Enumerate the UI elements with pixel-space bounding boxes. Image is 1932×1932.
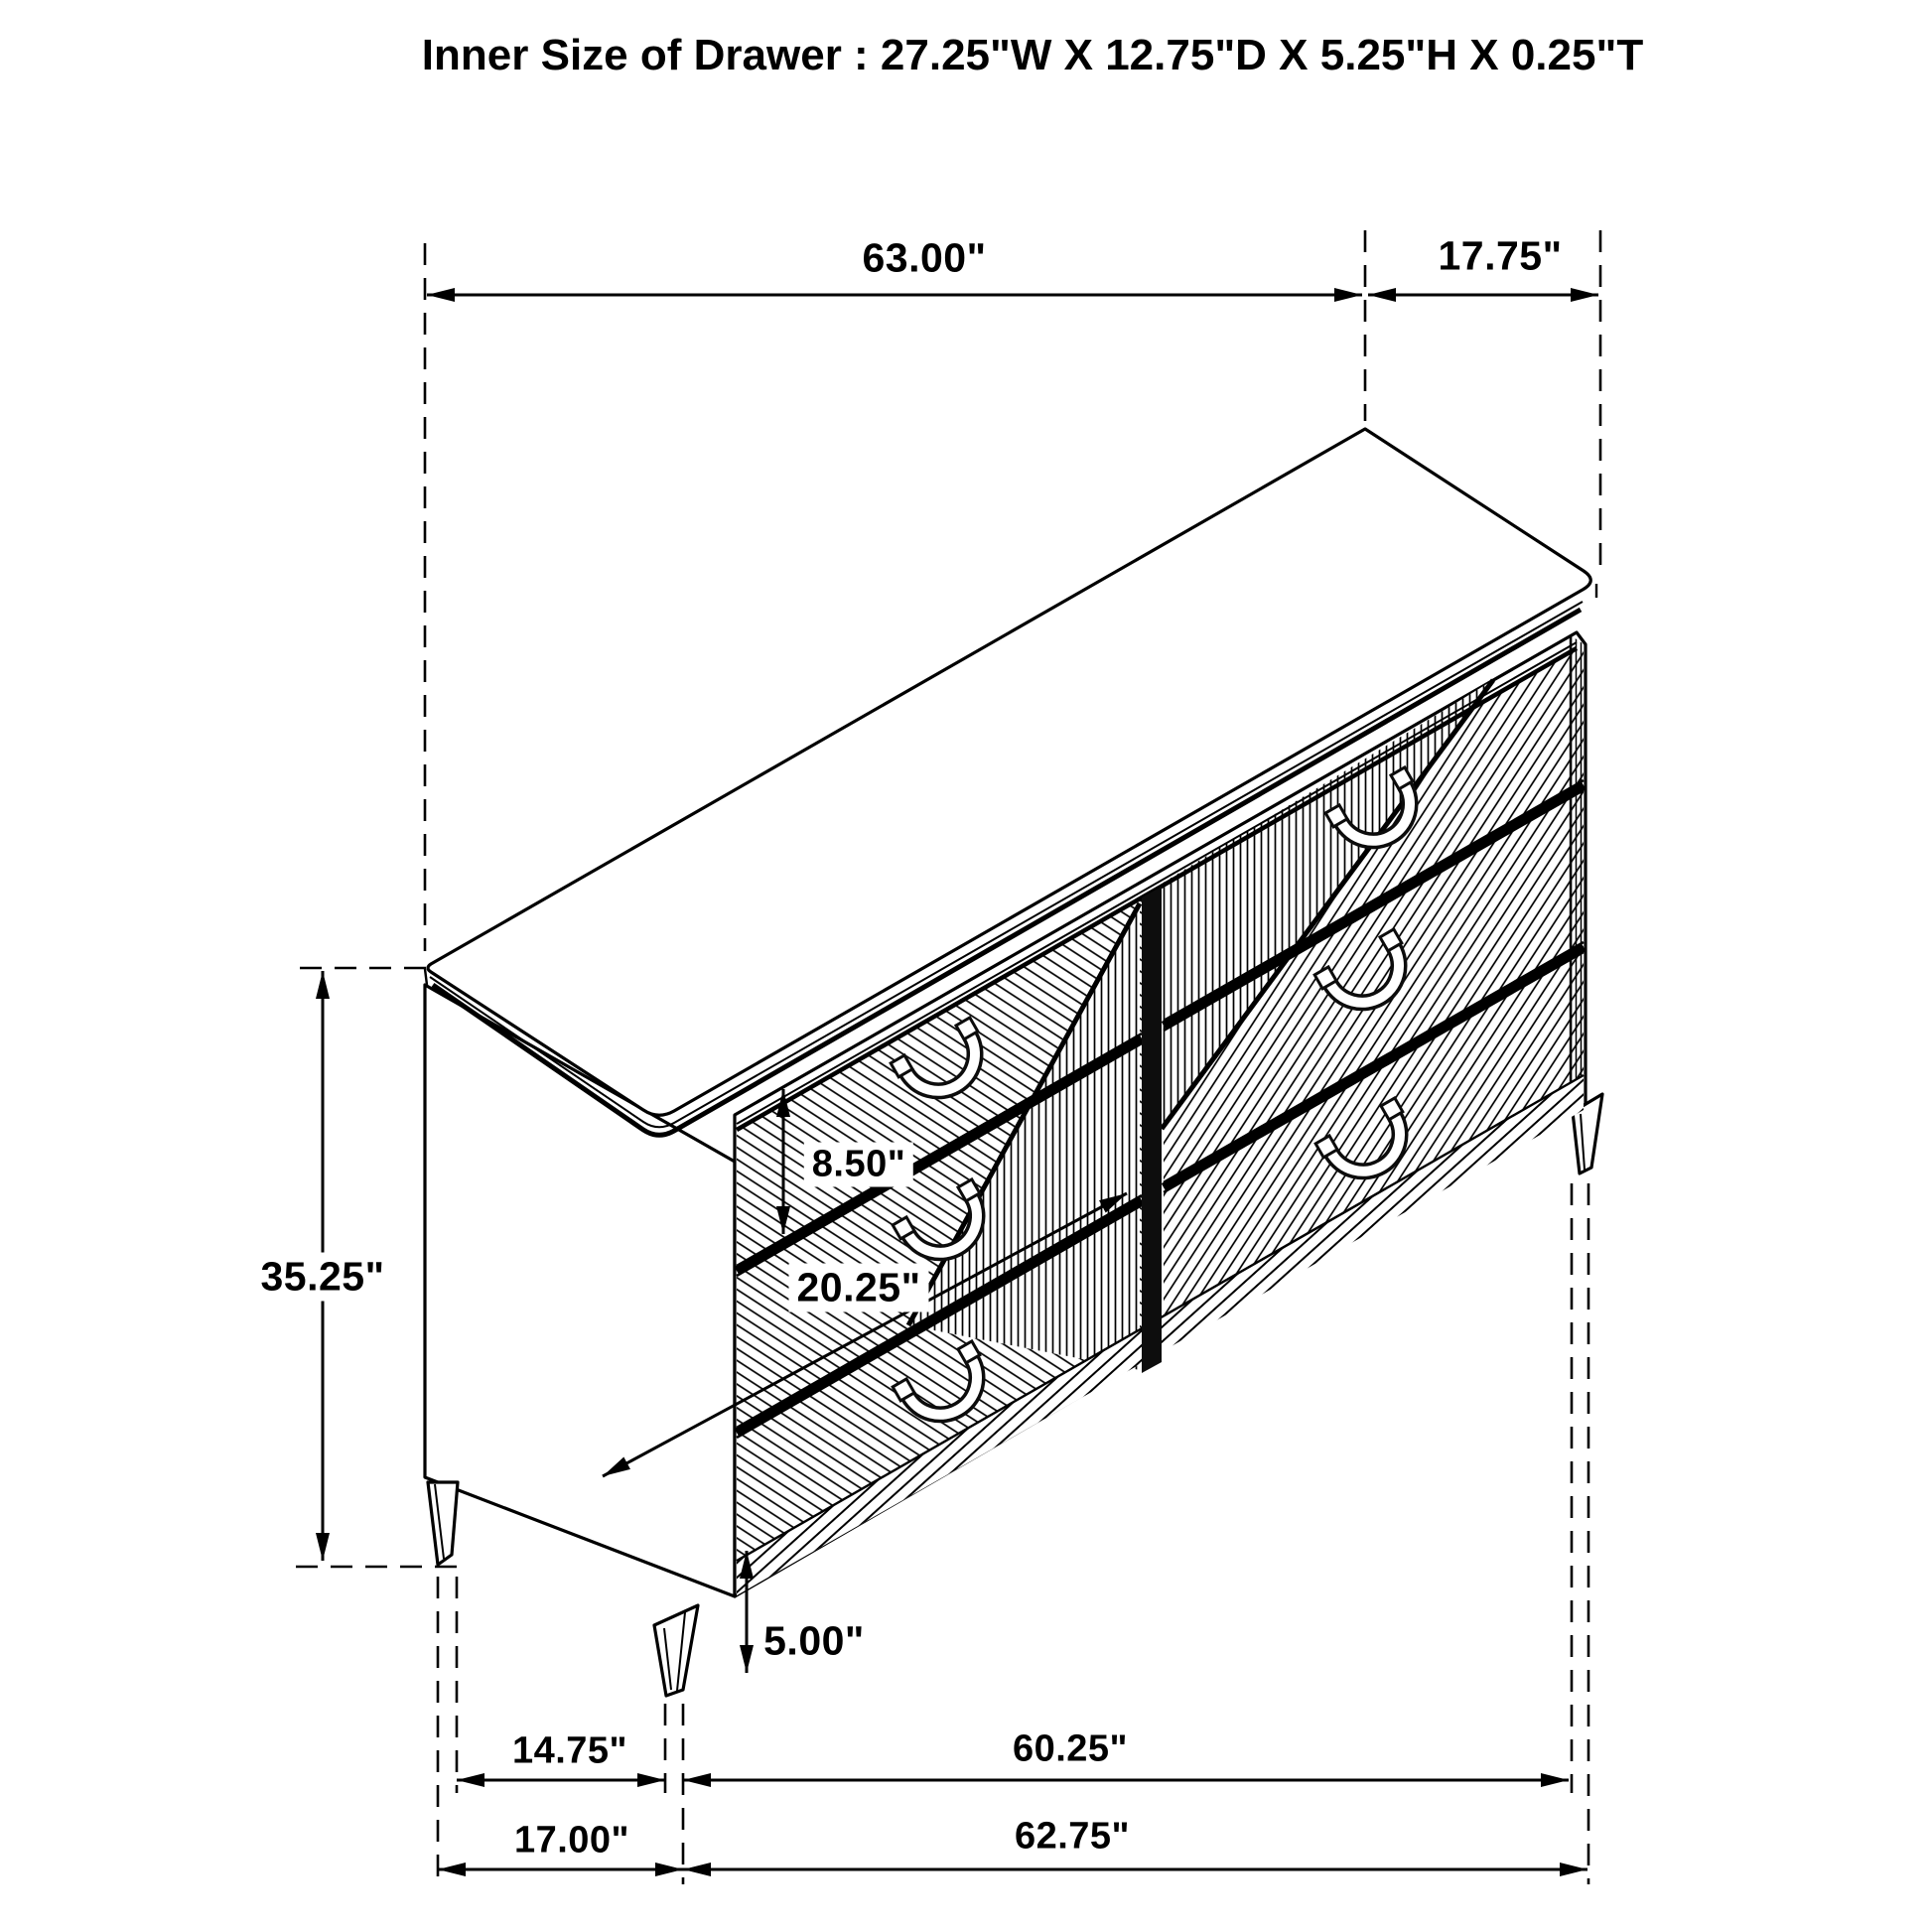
- dim-leg-height-label: 5.00": [763, 1618, 865, 1665]
- dresser-drawing: [0, 0, 1932, 1932]
- dim-left-leg-offset-label: 14.75": [512, 1730, 627, 1773]
- dim-drawer-front-width-label: 20.25": [788, 1264, 928, 1312]
- dim-top-depth-label: 17.75": [1438, 233, 1562, 280]
- dim-front-footprint-label: 62.75": [1015, 1816, 1130, 1859]
- dim-top-width-label: 63.00": [862, 235, 986, 282]
- rear-left-leg: [428, 1482, 458, 1565]
- right-corner-wrap: [1571, 635, 1586, 1117]
- dim-front-leg-span-label: 60.25": [1013, 1728, 1128, 1771]
- page-title: Inner Size of Drawer : 27.25"W X 12.75"D…: [422, 31, 1643, 80]
- dim-overall-height-label: 35.25": [252, 1253, 392, 1302]
- front-left-leg: [654, 1605, 698, 1696]
- dim-left-footprint-label: 17.00": [514, 1820, 629, 1863]
- technical-drawing-page: Inner Size of Drawer : 27.25"W X 12.75"D…: [0, 0, 1932, 1932]
- center-divider: [1142, 887, 1162, 1373]
- dresser-body: [425, 429, 1602, 1696]
- dim-drawer-front-height-label: 8.50": [804, 1143, 913, 1187]
